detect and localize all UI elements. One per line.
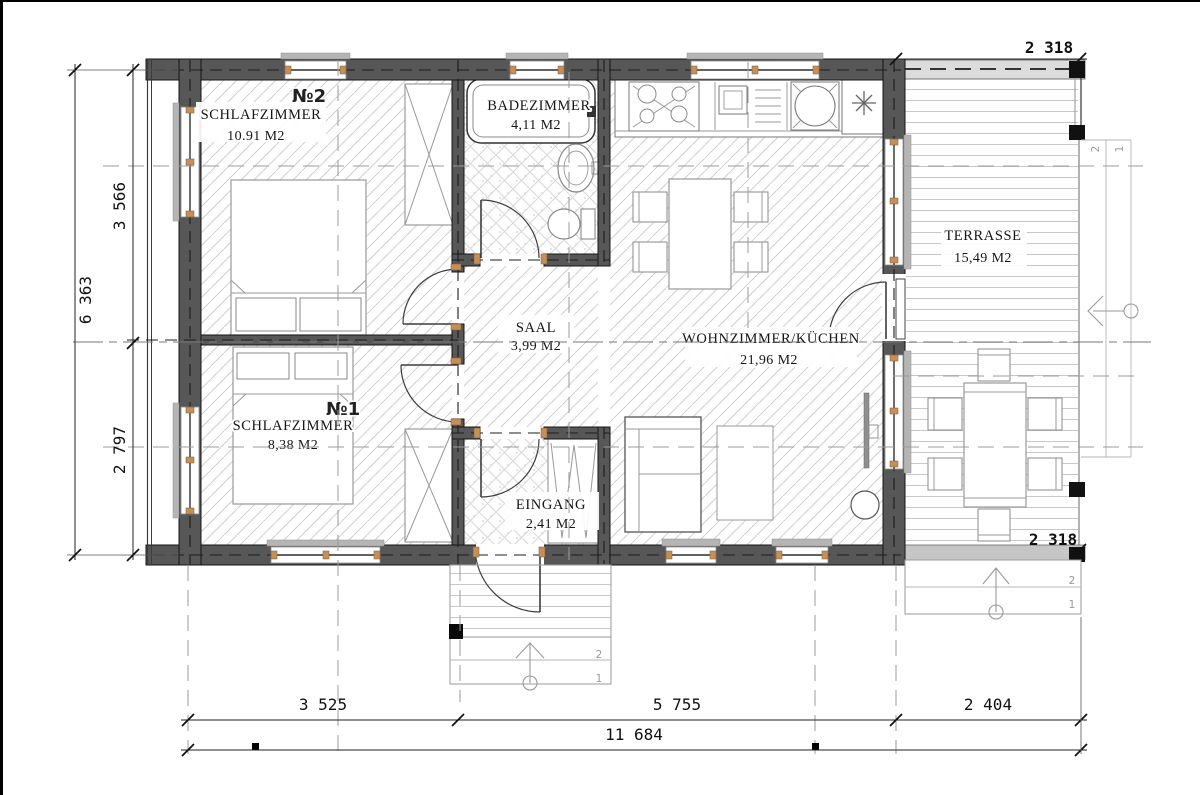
terrace-side-stairs: 2 1 [1081, 140, 1138, 457]
dining-chair [734, 242, 768, 272]
side-step-2: 2 [1090, 146, 1102, 153]
side-step-1: 1 [1114, 146, 1126, 153]
bathroom-name: BADEZIMMER [487, 98, 590, 114]
axis-marker [812, 743, 819, 750]
front-step-2: 2 [596, 649, 603, 661]
entrance-name: EINGANG [516, 497, 586, 513]
dining-chair [734, 192, 768, 222]
coffee-table [717, 426, 773, 520]
bedroom2-number: №2 [292, 86, 326, 107]
bathroom-area: 4,11 M2 [511, 118, 561, 133]
floor-plan-canvas: 2 1 2 1 2 1 №2 SCHLAFZIMMER 10.91 M2 BAD… [0, 0, 1200, 795]
dim-terrace-top: 2 318 [1025, 38, 1073, 57]
bedroom2-wardrobe [405, 84, 453, 225]
dim-bottom-total: 11 684 [605, 725, 663, 744]
dim-left-upper: 3 566 [110, 182, 129, 230]
terrace-chair [928, 398, 962, 430]
stair-direction-arrow [1088, 296, 1138, 326]
fridge [842, 80, 886, 134]
bedroom2-name: SCHLAFZIMMER [201, 107, 322, 123]
axis-marker [252, 743, 259, 750]
dim-bottom-seg1: 3 525 [299, 695, 347, 714]
sofa [625, 417, 701, 532]
bedroom1-name: SCHLAFZIMMER [233, 418, 354, 434]
terrace-chair [1028, 458, 1062, 490]
dim-terrace-bottom: 2 318 [1029, 530, 1077, 549]
toilet [548, 209, 595, 239]
terrace-area: 15,49 M2 [954, 251, 1012, 266]
side-table [851, 491, 879, 519]
terrace-step-1: 1 [1069, 599, 1076, 611]
porch-post [449, 624, 463, 639]
bedroom1-area: 8,38 M2 [268, 438, 318, 453]
bedroom2-bed [231, 180, 366, 335]
bedroom1-number: №1 [326, 399, 360, 420]
terrace-chair [1028, 398, 1062, 430]
dim-left-lower: 2 797 [110, 426, 129, 474]
hall-name: SAAL [516, 320, 556, 336]
floor-plan-svg: 2 1 2 1 2 1 №2 SCHLAFZIMMER 10.91 M2 BAD… [3, 2, 1200, 795]
terrace-post [1069, 482, 1085, 497]
porch-deck [450, 565, 611, 637]
front-step-1: 1 [596, 673, 603, 685]
hall-area: 3,99 M2 [511, 339, 561, 354]
dining-chair [633, 192, 667, 222]
terrace-bottom-stairs: 2 1 [905, 560, 1081, 619]
terrace-step-2: 2 [1069, 575, 1076, 587]
terrace-name: TERRASSE [944, 228, 1021, 244]
bedroom2-area: 10.91 M2 [227, 129, 285, 144]
livingroom-name: WOHNZIMMER/KÜCHEN [682, 330, 860, 347]
livingroom-area: 21,96 M2 [740, 353, 798, 368]
bedroom1-wardrobe [405, 429, 453, 542]
terrace-chair [978, 509, 1010, 541]
terrace-chair [928, 458, 962, 490]
terrace-post [1069, 61, 1085, 78]
dim-bottom-seg2: 5 755 [653, 695, 701, 714]
dining-chair [633, 242, 667, 272]
kitchen-round-sink [791, 82, 839, 130]
dim-bottom-seg3: 2 404 [964, 695, 1012, 714]
terrace-post [1069, 125, 1085, 140]
dim-left-total: 6 363 [76, 276, 95, 324]
